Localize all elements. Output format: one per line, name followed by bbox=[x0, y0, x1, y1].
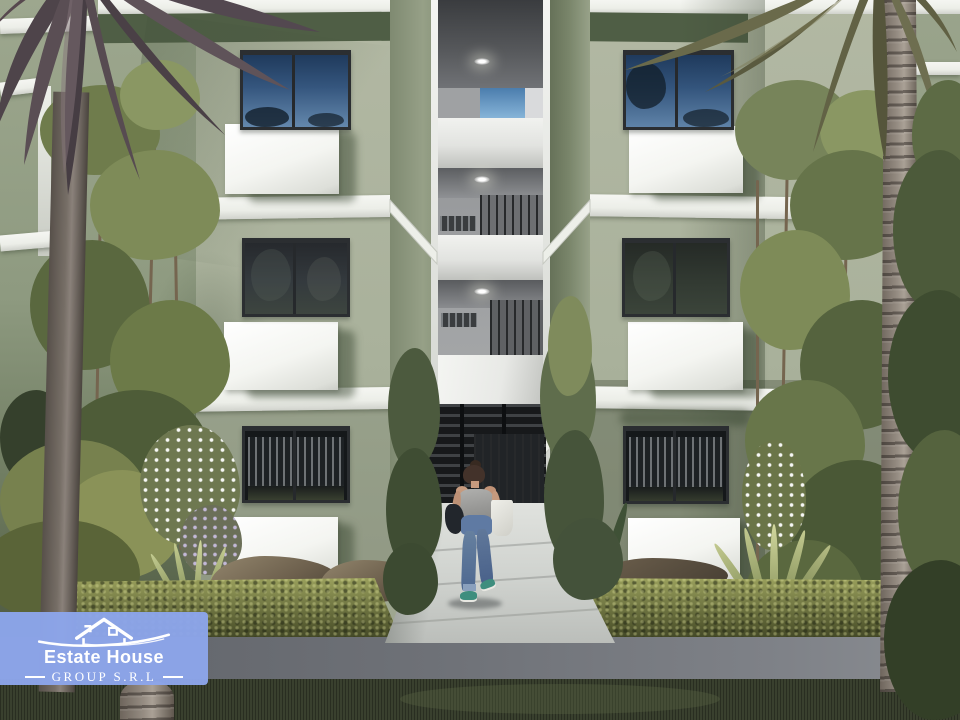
vertical-blinds bbox=[629, 437, 723, 487]
corridor-ceiling-f3 bbox=[437, 0, 543, 88]
logo-window bbox=[109, 628, 117, 635]
house-logo-icon bbox=[24, 616, 184, 650]
gate-grass-right bbox=[548, 296, 592, 396]
left-palm-fronds bbox=[0, 0, 410, 250]
corridor-louver-f2 bbox=[440, 216, 476, 231]
interior-floor-glow bbox=[629, 485, 723, 501]
palm-frond bbox=[883, 0, 957, 52]
person-walking bbox=[448, 458, 510, 610]
window-mullion bbox=[293, 243, 296, 314]
palm-frond bbox=[625, 0, 870, 70]
jeans-cuff bbox=[463, 584, 476, 591]
walkway-edge-leaves-left bbox=[383, 543, 438, 615]
neck bbox=[471, 481, 479, 488]
window-mullion bbox=[673, 431, 676, 501]
stair-railing-f2 bbox=[480, 195, 543, 235]
band-2-right-shadow bbox=[620, 410, 750, 426]
window-mullion bbox=[293, 431, 296, 500]
palm-frond bbox=[873, 0, 888, 162]
parapet-ground bbox=[437, 355, 543, 407]
tree-reflection bbox=[307, 257, 341, 301]
jeans-leg-right bbox=[475, 528, 494, 584]
parapet-f2 bbox=[437, 235, 543, 280]
logo-swoosh bbox=[39, 635, 169, 646]
white-box-f2-left bbox=[224, 322, 338, 390]
downlight-f3 bbox=[474, 58, 490, 65]
left-palm-stump bbox=[120, 680, 174, 720]
logo-roof bbox=[77, 619, 132, 638]
tote-bag bbox=[491, 500, 513, 536]
architectural-render-scene: Estate House GROUP S.R.L bbox=[0, 0, 960, 720]
person-shadow bbox=[448, 598, 502, 609]
watermark-logo-badge: Estate House GROUP S.R.L bbox=[0, 612, 208, 685]
brand-subtitle: GROUP S.R.L bbox=[52, 669, 157, 685]
walkway-edge-leaves-right bbox=[553, 518, 623, 600]
window-mullion bbox=[673, 243, 676, 314]
sneaker-left bbox=[460, 591, 477, 600]
window-f1-left bbox=[242, 426, 350, 503]
tree-reflection bbox=[633, 251, 671, 301]
downlight-f2 bbox=[474, 176, 490, 183]
white-box-f2-right bbox=[628, 322, 743, 390]
right-palm-fronds bbox=[555, 0, 960, 182]
downlight-f1 bbox=[474, 288, 490, 295]
sky-opening bbox=[480, 88, 525, 118]
window-f1-right bbox=[623, 426, 729, 504]
brand-name: Estate House bbox=[44, 648, 164, 667]
window-f2-right bbox=[622, 238, 730, 317]
palm-frond bbox=[813, 0, 877, 152]
stair-railing-f1 bbox=[490, 300, 543, 355]
jeans-leg-left bbox=[461, 531, 477, 591]
parapet-f3 bbox=[437, 118, 543, 168]
corridor-louver-f1 bbox=[441, 313, 477, 327]
corridor-ceiling-f2 bbox=[437, 168, 543, 198]
subtitle-dash-left bbox=[25, 676, 45, 678]
sky-opening-frame bbox=[525, 88, 543, 118]
brand-subtitle-row: GROUP S.R.L bbox=[25, 669, 184, 685]
subtitle-dash-right bbox=[163, 676, 183, 678]
tree-reflection bbox=[251, 249, 291, 301]
interior-floor-glow bbox=[248, 484, 344, 500]
vertical-blinds bbox=[248, 437, 344, 486]
